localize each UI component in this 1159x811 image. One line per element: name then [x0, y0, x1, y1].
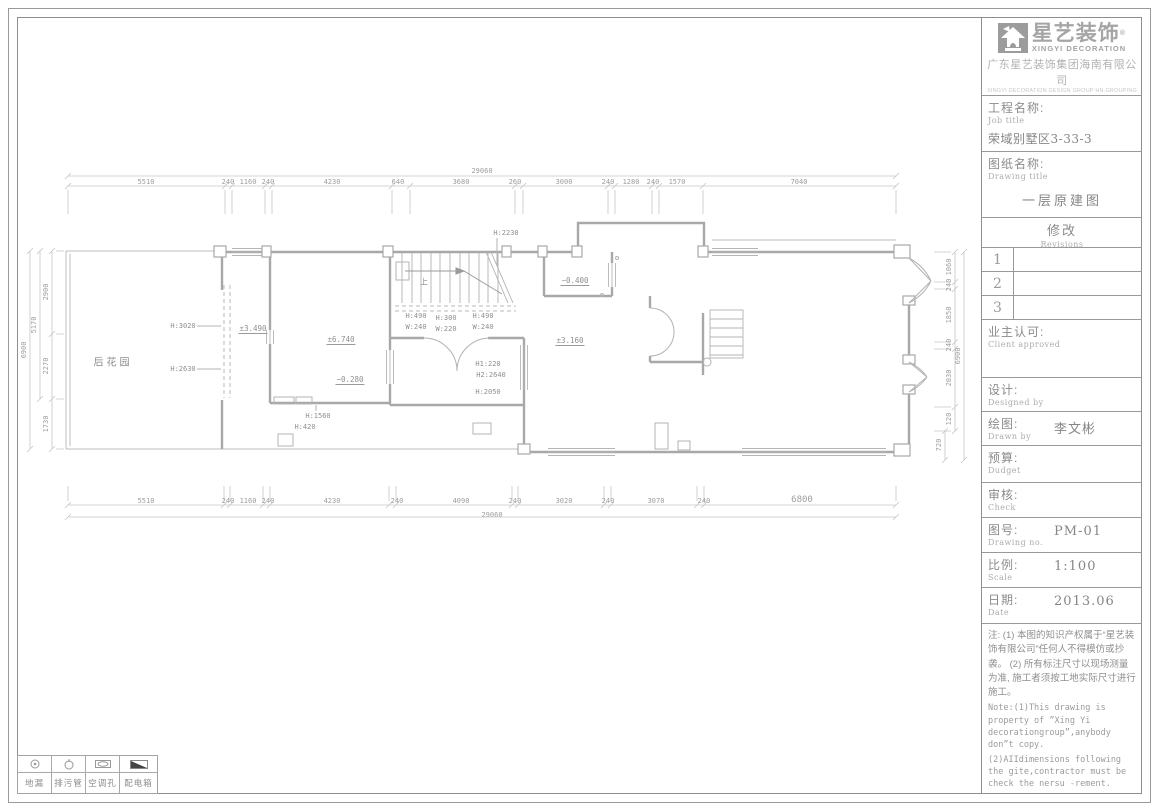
- date-section: 日期: Date 2013.06: [982, 588, 1142, 624]
- legend-label: 地漏: [18, 773, 51, 793]
- scale-value: 1:100: [1054, 559, 1096, 574]
- revision-row: 2: [982, 272, 1142, 296]
- job-value: 荣域别墅区3-33-3: [988, 130, 1136, 147]
- floor-drain-icon: [18, 756, 51, 773]
- designed-label-cn: 设计:: [988, 381, 1136, 398]
- brand-name-en: XINGYI DECORATION: [1032, 44, 1126, 53]
- date-value: 2013.06: [1054, 594, 1115, 609]
- client-label-cn: 业主认可:: [988, 323, 1136, 340]
- ac-hole-icon: [86, 756, 119, 773]
- drawing-sheet: 后花园±3.490±6.740−0.280−0.400±3.160H:3020H…: [0, 0, 1159, 811]
- legend-item-distribution-box: 配电箱: [120, 756, 157, 793]
- dashed-walls: [224, 285, 516, 398]
- job-title-section: 工程名称: Job title 荣域别墅区3-33-3: [982, 96, 1142, 152]
- revisions-label-cn: 修改: [1047, 223, 1077, 238]
- stair-direction-arrow: [405, 268, 502, 294]
- notes-section: 注: (1) 本图的知识产权属于“星艺装饰有限公司”任何人不得模仿或抄袭。 (2…: [982, 624, 1142, 795]
- registered-mark: ®: [1120, 30, 1126, 37]
- title-block-panel: 星艺装饰® XINGYI DECORATION 广东星艺装饰集团海南有限公司 X…: [981, 17, 1142, 794]
- note-text-cn: 注: (1) 本图的知识产权属于“星艺装饰有限公司”任何人不得模仿或抄袭。 (2…: [988, 629, 1136, 700]
- revision-number: 2: [982, 272, 1014, 295]
- revision-row: 3: [982, 296, 1142, 320]
- check-section: 审核: Check: [982, 483, 1142, 518]
- legend-label: 排污管: [52, 773, 85, 793]
- drawing-no-value: PM-01: [1054, 524, 1102, 539]
- wall-pillars: [214, 245, 915, 456]
- legend: 地漏 排污管 空调孔 配电箱: [17, 755, 158, 794]
- sewage-pipe-icon: [52, 756, 85, 773]
- legend-item-sewage-pipe: 排污管: [52, 756, 86, 793]
- staircase: [402, 252, 743, 358]
- budget-label-en: Dudget: [988, 466, 1136, 475]
- company-logo: [998, 23, 1028, 53]
- legend-label: 配电箱: [120, 773, 157, 793]
- note-text-en-1: Note:(1)This drawing is property of ”Xin…: [988, 702, 1136, 751]
- company-name-en: XINGYI DECORATION DESIGN GROUP HN.GROUPI…: [984, 88, 1140, 94]
- company-name-cn: 广东星艺装饰集团海南有限公司: [984, 56, 1140, 88]
- garden-boundary: [66, 240, 896, 449]
- designed-by-section: 设计: Designed by: [982, 378, 1142, 412]
- drawn-by-value: 李文彬: [1054, 418, 1096, 437]
- job-label-en: Job title: [988, 116, 1136, 125]
- drawn-by-section: 绘图: Drawn by 李文彬: [982, 412, 1142, 446]
- revision-number: 3: [982, 296, 1014, 319]
- drawing-value: 一层原建图: [988, 190, 1136, 209]
- revision-number: 1: [982, 248, 1014, 271]
- check-label-en: Check: [988, 503, 1136, 512]
- revision-row: 1: [982, 248, 1142, 272]
- drawing-title-section: 图纸名称: Drawing title 一层原建图: [982, 152, 1142, 218]
- revision-entry: [1014, 248, 1142, 271]
- legend-label: 空调孔: [86, 773, 119, 793]
- drawing-no-section: 图号: Drawing no. PM-01: [982, 518, 1142, 553]
- note-text-en-2: (2)AIIdimensions following the gite,cont…: [988, 754, 1136, 791]
- legend-item-floor-drain: 地漏: [18, 756, 52, 793]
- date-label-en: Date: [988, 608, 1136, 617]
- window-hatches: [232, 249, 886, 456]
- revisions-header: 修改 Revisions: [982, 218, 1142, 248]
- client-approved-section: 业主认可: Client approved: [982, 320, 1142, 378]
- budget-section: 预算: Dudget: [982, 446, 1142, 483]
- client-label-en: Client approved: [988, 340, 1136, 349]
- scale-label-en: Scale: [988, 573, 1136, 582]
- drawing-label-cn: 图纸名称:: [988, 155, 1136, 172]
- distribution-box-icon: [120, 756, 157, 773]
- drawing-label-en: Drawing title: [988, 172, 1136, 181]
- budget-label-cn: 预算:: [988, 449, 1136, 466]
- drawing-no-label-en: Drawing no.: [988, 538, 1136, 547]
- house-icon: [998, 23, 1028, 53]
- walls: [222, 223, 909, 452]
- door-swings: [424, 258, 931, 392]
- revisions-label-en: Revisions: [988, 240, 1136, 249]
- brand-section: 星艺装饰® XINGYI DECORATION 广东星艺装饰集团海南有限公司 X…: [982, 17, 1142, 96]
- job-label-cn: 工程名称:: [988, 99, 1136, 116]
- brand-name-cn: 星艺装饰®: [1032, 24, 1126, 44]
- check-label-cn: 审核:: [988, 486, 1136, 503]
- plan-features: [197, 238, 711, 450]
- scale-section: 比例: Scale 1:100: [982, 553, 1142, 588]
- revision-entry: [1014, 296, 1142, 319]
- designed-label-en: Designed by: [988, 398, 1136, 407]
- legend-item-ac-hole: 空调孔: [86, 756, 120, 793]
- dimension-lines: [27, 173, 967, 520]
- revision-entry: [1014, 272, 1142, 295]
